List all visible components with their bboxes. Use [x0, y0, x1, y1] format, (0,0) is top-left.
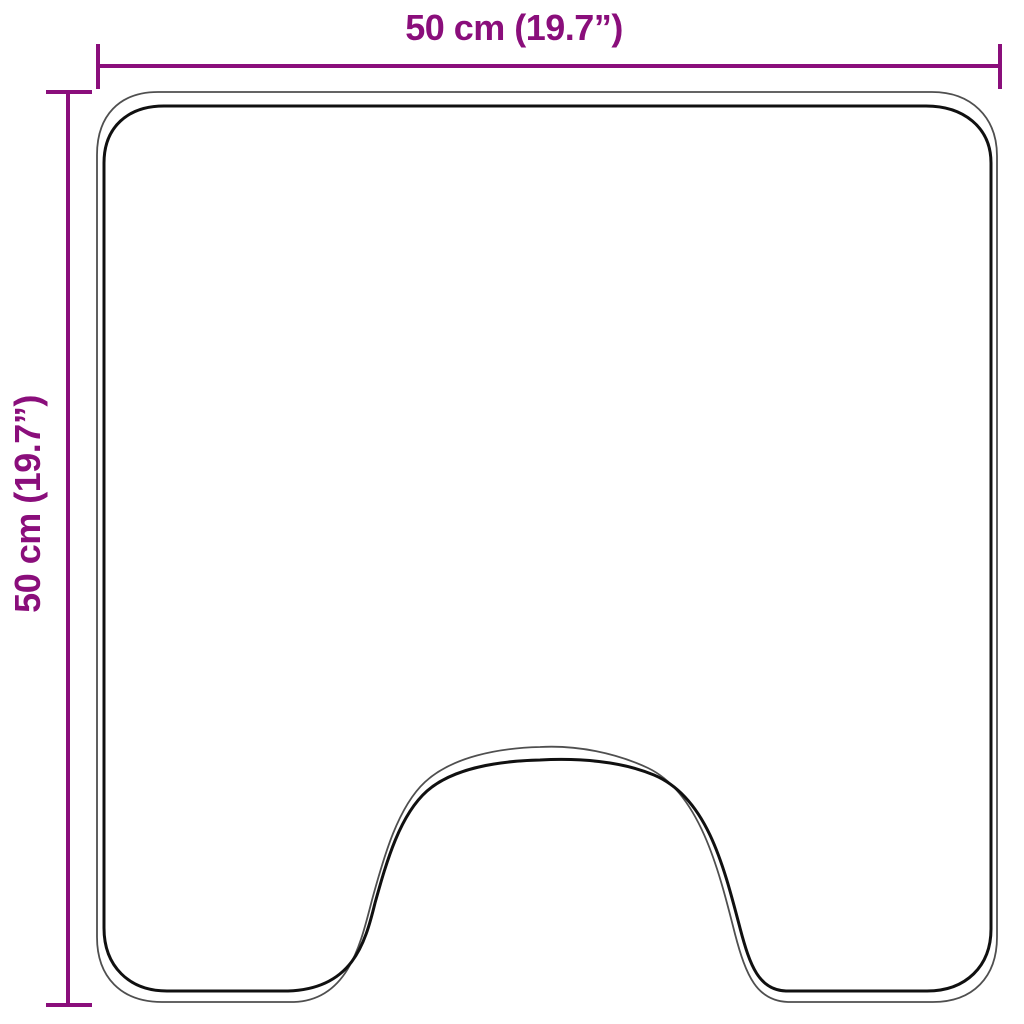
mat-inner-contour	[104, 106, 991, 991]
mat-outer-contour	[97, 92, 997, 1002]
product-dimension-diagram: 50 cm (19.7”) 50 cm (19.7”)	[0, 0, 1024, 1024]
width-dimension	[98, 44, 1000, 89]
height-dimension-label: 50 cm (19.7”)	[10, 395, 46, 613]
height-dimension	[46, 92, 92, 1005]
diagram-canvas	[0, 0, 1024, 1024]
width-dimension-label: 50 cm (19.7”)	[405, 10, 623, 46]
